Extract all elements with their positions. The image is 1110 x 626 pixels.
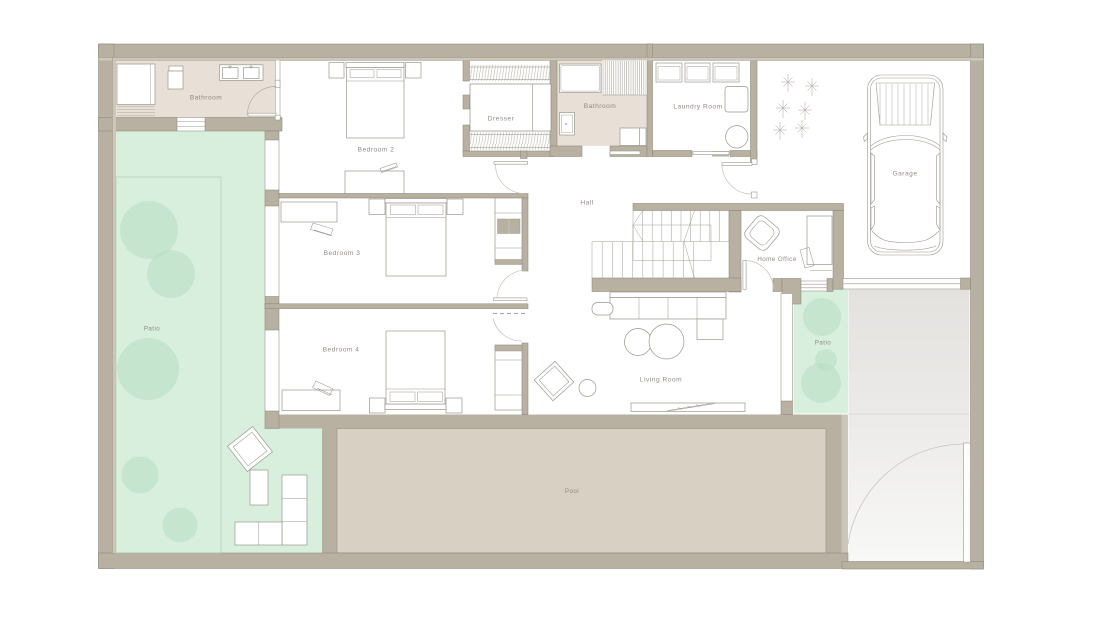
svg-text:Living Room: Living Room: [640, 377, 682, 384]
svg-text:Laundry Room: Laundry Room: [673, 104, 722, 111]
svg-text:Hall: Hall: [580, 200, 593, 207]
svg-text:Patio: Patio: [815, 340, 831, 347]
svg-text:Garage: Garage: [893, 171, 918, 178]
svg-text:Home Office: Home Office: [757, 256, 796, 263]
svg-text:Bedroom 2: Bedroom 2: [358, 147, 395, 154]
svg-text:Patio: Patio: [144, 326, 160, 333]
svg-text:Bedroom 3: Bedroom 3: [324, 250, 361, 257]
svg-text:Bedroom 4: Bedroom 4: [323, 347, 360, 354]
svg-text:Bathroom: Bathroom: [584, 103, 617, 110]
svg-text:Dresser: Dresser: [488, 116, 515, 123]
svg-text:Bathroom: Bathroom: [190, 95, 223, 102]
svg-text:Pool: Pool: [565, 488, 579, 495]
